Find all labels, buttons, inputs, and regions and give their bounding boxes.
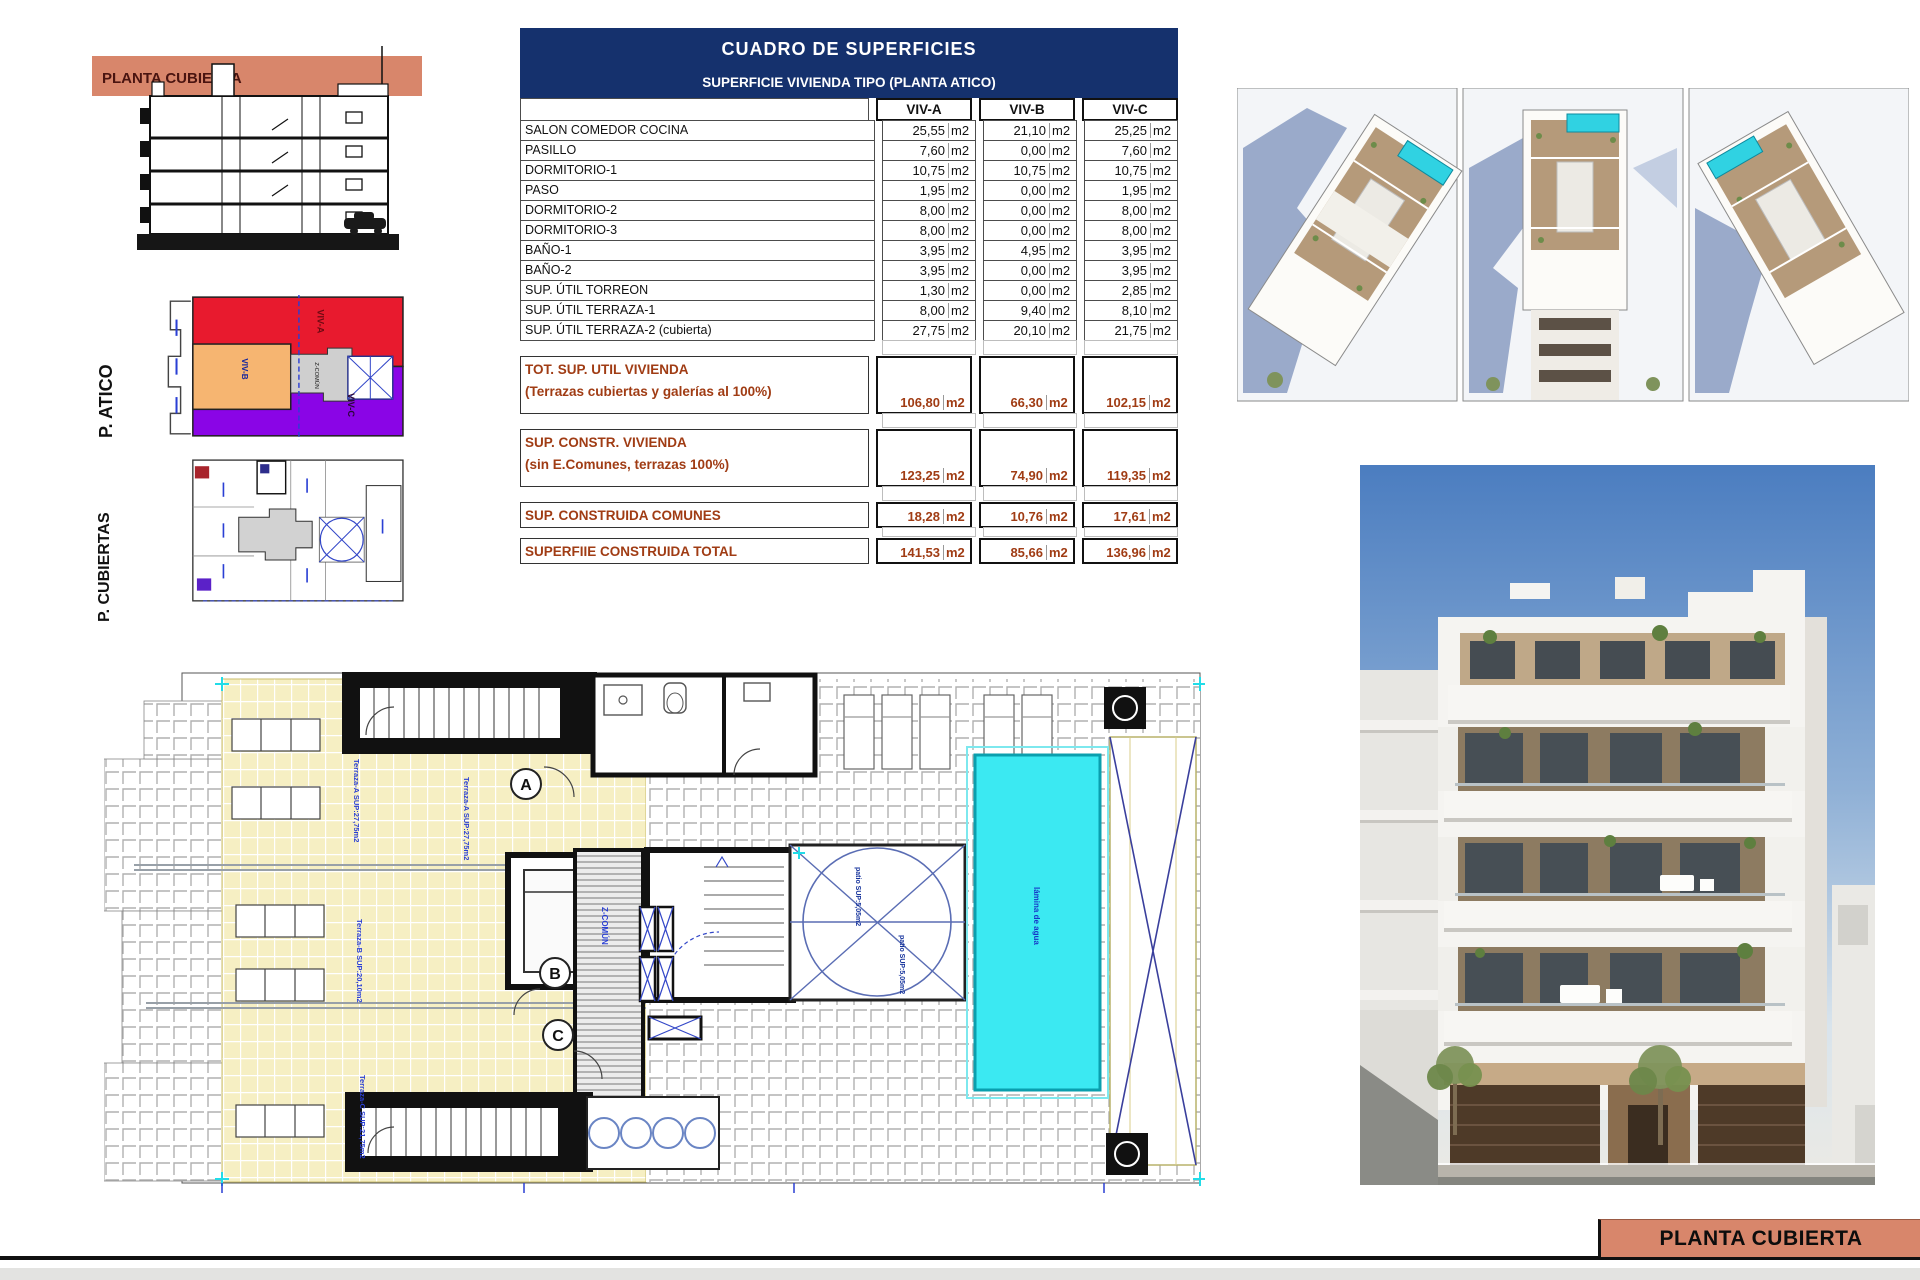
terraza-a-label2: Terraza-A SUP:27,75m2 [462, 777, 471, 860]
table-row: DORMITORIO-110,75m210,75m210,75m2 [520, 160, 1178, 181]
table-spacer [520, 486, 1178, 501]
table-row: SUP. ÚTIL TORREON1,30m20,00m22,85m2 [520, 280, 1178, 301]
col-viv-b: VIV-B [979, 98, 1075, 121]
ground-floor [1444, 1063, 1805, 1170]
bottom-stair-block [345, 1092, 593, 1172]
table-row: DORMITORIO-38,00m20,00m28,00m2 [520, 220, 1178, 241]
table-row: DORMITORIO-28,00m20,00m28,00m2 [520, 200, 1178, 221]
table-row: BAÑO-13,95m24,95m23,95m2 [520, 240, 1178, 261]
balcony-band [1438, 835, 1805, 932]
cubiertas-purple-block [197, 578, 211, 590]
viv-c-label: VIV-C [346, 393, 356, 417]
table-title: CUADRO DE SUPERFICIES [520, 28, 1178, 70]
atico-color-plan: VIV-A VIV-B VIV-C Z-COMÚN [150, 295, 405, 440]
table-row: SALON COMEDOR COCINA25,55m221,10m225,25m… [520, 120, 1178, 141]
terraza-b-label: Terraza-B SUP:20,10m2 [355, 919, 364, 1003]
left-tile-strips [104, 701, 222, 1181]
cubiertas-plan [150, 458, 405, 606]
table-header-row: VIV-A VIV-B VIV-C [520, 98, 1178, 121]
summary-row-comunes: SUP. CONSTRUIDA COMUNES 18,28m2 10,76m2 … [520, 502, 1178, 528]
right-lightwell [1104, 687, 1196, 1175]
table-row: SUP. ÚTIL TERRAZA-18,00m29,40m28,10m2 [520, 300, 1178, 321]
solar-cylinders [577, 1095, 719, 1171]
unit-a-letter: A [520, 777, 532, 794]
table-spacer [520, 527, 1178, 537]
table-row: BAÑO-23,95m20,00m23,95m2 [520, 260, 1178, 281]
facade-render [1360, 465, 1875, 1185]
aerial-render-panel [1689, 88, 1909, 401]
header-spacer [520, 98, 869, 121]
sheet-title: PLANTA CUBIERTA [1598, 1219, 1920, 1257]
swimming-pool: lámina de agua [967, 747, 1108, 1098]
viv-b-label: VIV-B [240, 358, 249, 379]
building-section-drawing: PLANTA CUBIERTA [92, 38, 428, 270]
atico-plan-label: P. ATICO [96, 364, 117, 438]
dimension-ticks [222, 1183, 1104, 1193]
aerial-render-panel [1463, 88, 1683, 401]
table-row: PASO1,95m20,00m21,95m2 [520, 180, 1178, 201]
patio-label-top: patio SUP:5,05m2 [854, 867, 861, 926]
table-spacer [520, 340, 1178, 355]
plan-sheet: PLANTA CUBIERTA [0, 0, 1920, 1280]
summary-row-util: TOT. SUP. UTIL VIVIENDA(Terrazas cubiert… [520, 356, 1178, 414]
attic-level [1448, 625, 1790, 724]
machine-box-bottom [1106, 1133, 1148, 1175]
col-viv-a: VIV-A [876, 98, 972, 121]
unit-c-letter: C [552, 1028, 564, 1045]
patio-skylight: patio SUP:5,05m2 patio SUP:5,05m2 [790, 845, 965, 1000]
roof-floor-plan: A Z-COMÚN [104, 667, 1205, 1195]
table-spacer [520, 413, 1178, 428]
cubiertas-plan-label: P. CUBIERTAS [96, 512, 114, 622]
aerial-render-panel [1237, 88, 1462, 401]
torreon-bathroom [593, 675, 815, 775]
core-label: Z-COMÚN [600, 907, 609, 945]
balcony-band [1438, 722, 1805, 822]
patio-label-bottom: patio SUP:5,05m2 [898, 935, 905, 994]
summary-row-constr: SUP. CONSTR. VIVIENDA(sin E.Comunes, ter… [520, 429, 1178, 487]
section-balconies [140, 108, 150, 223]
atico-left-bracket [168, 301, 190, 434]
sheet-title-text: PLANTA CUBIERTA [1659, 1227, 1862, 1251]
summary-row-total: SUPERFIIE CONSTRUIDA TOTAL 141,53m2 85,6… [520, 538, 1178, 564]
footer-strip [0, 1268, 1920, 1280]
section-ground [137, 234, 399, 250]
terraza-a-label: Terraza-A SUP:27,75m2 [352, 759, 361, 842]
table-row: PASILLO7,60m20,00m27,60m2 [520, 140, 1178, 161]
viv-a-label: VIV-A [315, 309, 325, 333]
table-subtitle: SUPERFICIE VIVIENDA TIPO (PLANTA ATICO) [520, 70, 1178, 98]
cubiertas-right-room [366, 486, 401, 582]
unit-b-letter: B [549, 966, 561, 983]
table-row: SUP. ÚTIL TERRAZA-2 (cubierta)27,75m220,… [520, 320, 1178, 341]
pool-label: lámina de agua [1032, 887, 1041, 945]
core-ramp [575, 850, 643, 1116]
top-stair-block [342, 672, 597, 754]
right-neighbor-building [1832, 885, 1875, 1185]
cubiertas-red-block [195, 466, 209, 478]
aerial-renders [1237, 88, 1909, 403]
cubiertas-torreon-mark [260, 464, 269, 473]
atico-core-label: Z-COMÚN [313, 362, 320, 388]
surfaces-table: CUADRO DE SUPERFICIES SUPERFICIE VIVIEND… [520, 28, 1178, 564]
machine-box-top [1104, 687, 1146, 729]
balcony-band [1438, 943, 1805, 1046]
terraza-c-label: Terraza-C SUP:21,75m2 [358, 1075, 367, 1159]
col-viv-c: VIV-C [1082, 98, 1178, 121]
